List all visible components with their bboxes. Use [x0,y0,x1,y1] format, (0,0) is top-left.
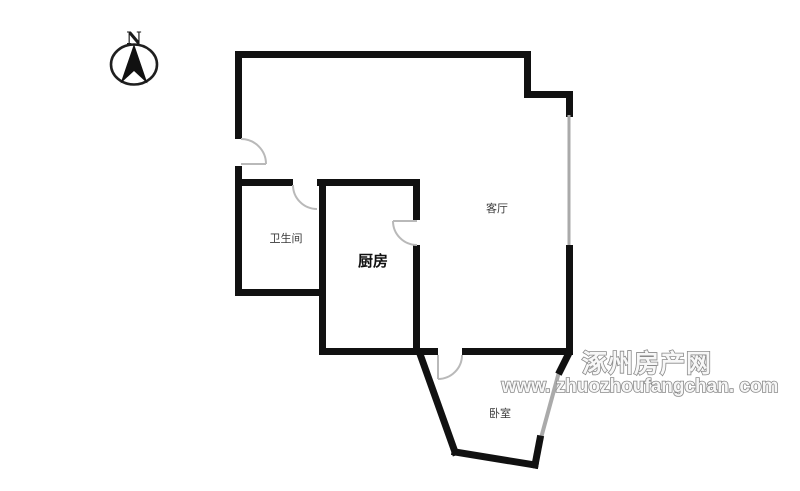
watermark: 涿州房产网 www. zhuozhoufangchan. com [501,349,779,397]
window-segment [568,115,571,245]
wall-segment [566,91,573,117]
north-arrow-icon [121,44,148,84]
door-arc [438,355,462,379]
north-compass: N [111,29,157,85]
wall-segment [535,439,540,465]
door-arc [393,221,417,245]
walls [235,51,573,355]
wall-segment [235,179,293,186]
wall-segment [235,51,531,58]
wall-segment [413,179,420,220]
wall-segment [524,51,531,97]
wall-segment [413,245,420,355]
wall-segment [235,289,326,296]
wall-segment [462,348,573,355]
wall-segment [566,245,573,355]
room-label-kitchen: 厨房 [358,252,388,270]
room-label-bathroom: 卫生间 [270,231,303,245]
watermark-site-name: 涿州房产网 [582,349,712,378]
door-arc [293,185,317,209]
wall-segment [319,179,326,355]
room-label-living-room: 客厅 [486,201,508,215]
floor-plan-canvas: N [0,0,800,491]
watermark-url: www. zhuozhoufangchan. com [501,376,779,397]
floor-plan-page: N [0,0,800,491]
doors [241,139,462,379]
door-arc [241,139,266,164]
wall-segment [524,91,573,98]
wall-segment [455,452,535,465]
room-label-bedroom: 卧室 [489,406,511,420]
wall-segment [560,355,568,371]
room-labels: 卫生间 厨房 客厅 卧室 [270,201,512,420]
wall-segment [235,51,242,139]
wall-segment [317,179,420,186]
